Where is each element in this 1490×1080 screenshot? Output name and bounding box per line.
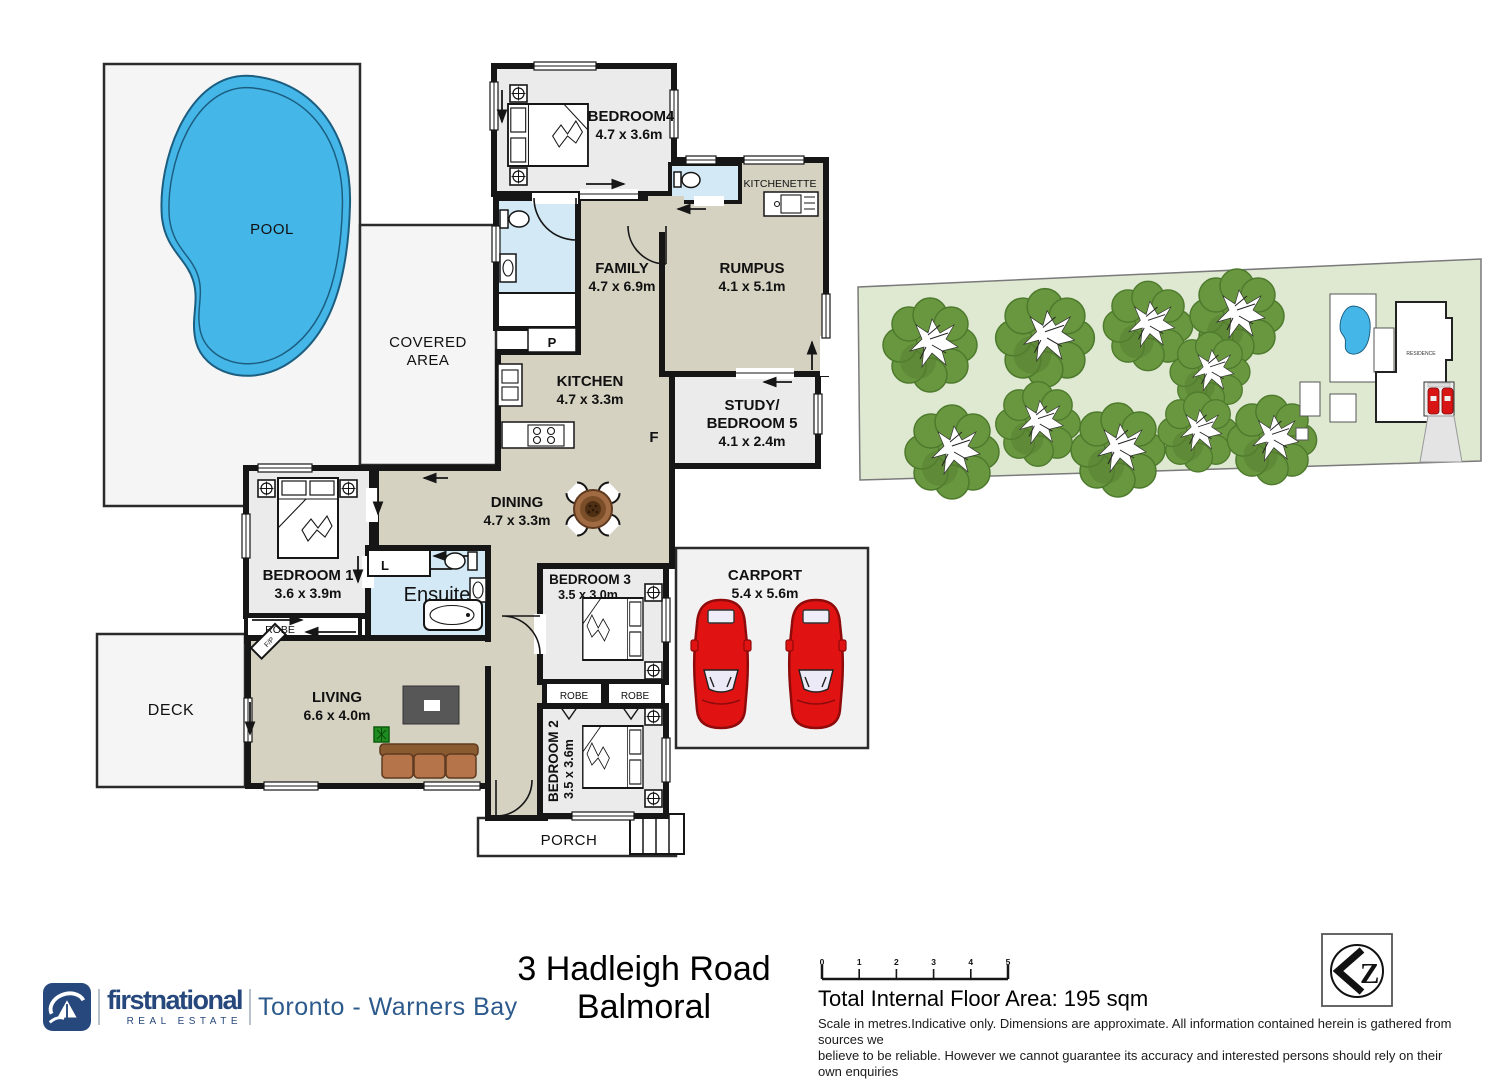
brand-name: firstnational [107,987,242,1014]
label-kitchen-name: KITCHEN [557,373,624,390]
label-robe-2: ROBE [560,691,589,702]
floorplan-canvas: RESIDENCE [0,0,1490,935]
scale-tick-4: 4 [968,957,973,967]
label-covered-1: COVERED [389,334,467,351]
label-bedroom3-name: BEDROOM 3 [549,572,631,587]
plant-icon [374,727,389,742]
label-pool: POOL [250,221,294,238]
label-ensuite: Ensuite [404,584,471,606]
label-dining-dims: 4.7 x 3.3m [484,512,551,528]
label-covered-2: AREA [407,352,450,369]
footer: firstnational REAL ESTATE Toronto - Warn… [0,935,1490,1080]
disclaimer-text: Scale in metres.Indicative only. Dimensi… [818,1016,1468,1079]
label-bedroom4-dims: 4.7 x 3.6m [596,126,663,142]
scale-tick-0: 0 [820,957,825,967]
disclaimer-line1: Scale in metres.Indicative only. Dimensi… [818,1016,1468,1048]
label-study-2: BEDROOM 5 [707,415,798,432]
north-compass-icon: Z [1321,933,1393,1007]
label-bedroom2-dims: 3.5 x 3.6m [562,739,576,799]
brand-block: firstnational REAL ESTATE Toronto - Warn… [43,983,518,1031]
disclaimer-line2: believe to be reliable. However we canno… [818,1048,1468,1080]
label-bedroom1-dims: 3.6 x 3.9m [275,585,342,601]
brand-subtitle: REAL ESTATE [127,1016,242,1027]
porch-steps [630,814,684,854]
label-living-dims: 6.6 x 4.0m [304,707,371,723]
label-fridge: F [649,429,658,446]
label-bedroom3-dims: 3.5 x 3.0m [558,588,618,602]
bed-icon [278,478,338,558]
label-bedroom1-name: BEDROOM 1 [263,567,354,584]
label-study-dims: 4.1 x 2.4m [719,433,786,449]
brand-office: Toronto - Warners Bay [258,993,518,1022]
property-address: 3 Hadleigh Road Balmoral [488,950,800,1027]
bed-icon [583,726,643,788]
site-driveway [1420,416,1462,462]
compass-letter: Z [1360,958,1379,990]
bed-icon [583,598,643,660]
car-icon [786,600,846,728]
label-deck: DECK [148,702,194,719]
scale-tick-3: 3 [931,957,936,967]
brand-divider-2 [249,989,251,1025]
address-line1: 3 Hadleigh Road [488,950,800,988]
label-rumpus-name: RUMPUS [719,260,784,277]
floorplan-page: RESIDENCE [0,0,1490,1080]
scale-tick-5: 5 [1006,957,1011,967]
address-line2: Balmoral [488,988,800,1026]
label-bedroom4-name: BEDROOM4 [588,108,675,125]
firstnational-logo-icon [43,983,91,1031]
label-porch: PORCH [541,832,598,849]
label-dining-name: DINING [491,494,544,511]
scale-tick-1: 1 [857,957,862,967]
label-pantry: P [548,335,557,350]
label-living-name: LIVING [312,689,362,706]
brand-divider [98,989,100,1025]
scale-bar: 0 1 2 3 4 5 [818,957,1018,983]
label-family-name: FAMILY [595,260,649,277]
label-robe-1: ROBE [265,624,295,636]
sofa-icon [380,744,478,778]
label-robe-3: ROBE [621,691,650,702]
label-kitchen-dims: 4.7 x 3.3m [557,391,624,407]
site-plan: RESIDENCE [858,259,1481,499]
label-carport-name: CARPORT [728,567,802,584]
scale-tick-2: 2 [894,957,899,967]
label-carport-dims: 5.4 x 5.6m [732,585,799,601]
bed-icon [508,104,588,166]
label-bedroom2-name: BEDROOM 2 [546,720,561,802]
label-study-1: STUDY/ [724,397,780,414]
label-rumpus-dims: 4.1 x 5.1m [719,278,786,294]
car-icon [691,600,751,728]
label-kitchenette: KITCHENETTE [744,178,817,190]
label-linen: L [381,558,389,573]
site-residence-label: RESIDENCE [1406,351,1436,357]
label-family-dims: 4.7 x 6.9m [589,278,656,294]
